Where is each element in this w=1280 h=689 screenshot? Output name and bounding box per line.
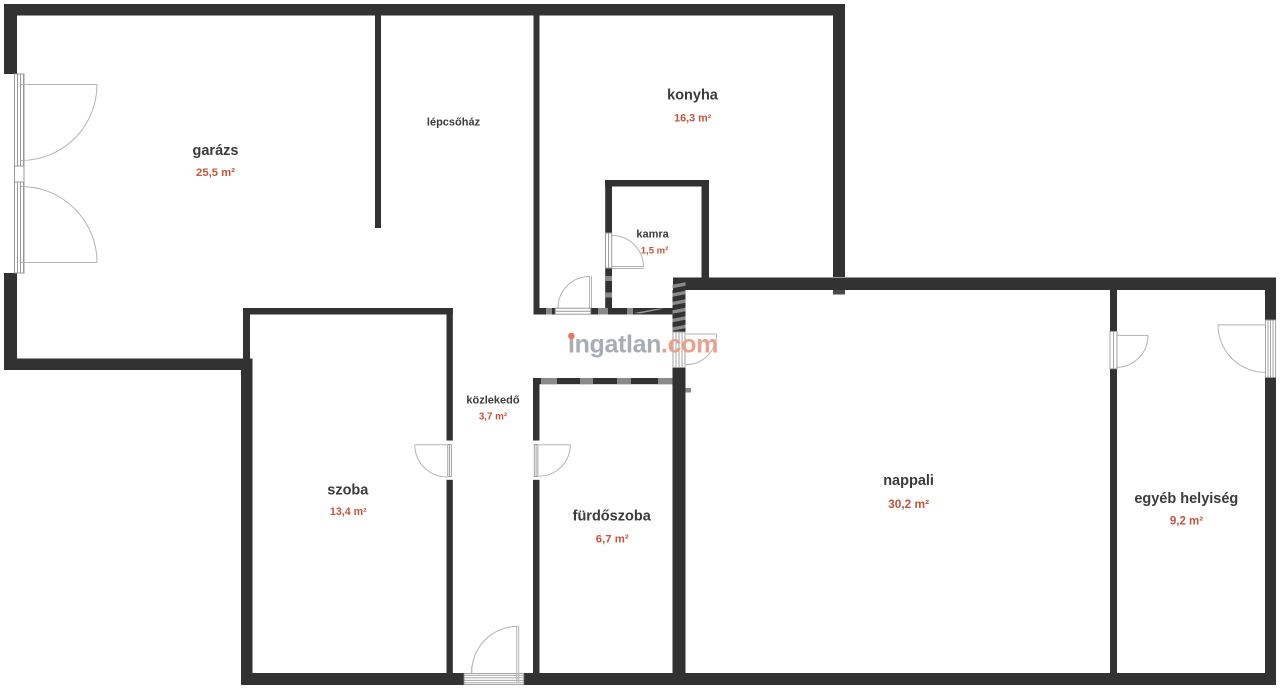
svg-text:25,5 m²: 25,5 m² bbox=[196, 167, 235, 179]
svg-text:13,4 m²: 13,4 m² bbox=[330, 506, 367, 518]
svg-text:30,2 m²: 30,2 m² bbox=[888, 497, 929, 511]
svg-text:közlekedő: közlekedő bbox=[466, 395, 519, 407]
svg-text:kamra: kamra bbox=[636, 228, 669, 240]
svg-text:egyéb helyiség: egyéb helyiség bbox=[1134, 491, 1238, 507]
svg-text:garázs: garázs bbox=[193, 143, 239, 159]
svg-text:lépcsőház: lépcsőház bbox=[427, 117, 481, 129]
svg-text:1,5 m²: 1,5 m² bbox=[641, 245, 668, 256]
svg-text:9,2 m²: 9,2 m² bbox=[1170, 515, 1203, 527]
svg-text:fürdőszoba: fürdőszoba bbox=[573, 508, 652, 524]
svg-text:3,7 m²: 3,7 m² bbox=[479, 411, 508, 422]
svg-text:6,7 m²: 6,7 m² bbox=[596, 534, 629, 546]
svg-text:szoba: szoba bbox=[327, 482, 369, 498]
svg-text:konyha: konyha bbox=[667, 88, 719, 104]
svg-text:nappali: nappali bbox=[883, 473, 934, 489]
svg-text:16,3 m²: 16,3 m² bbox=[674, 113, 712, 125]
svg-text:ingatlan.com: ingatlan.com bbox=[568, 331, 718, 359]
